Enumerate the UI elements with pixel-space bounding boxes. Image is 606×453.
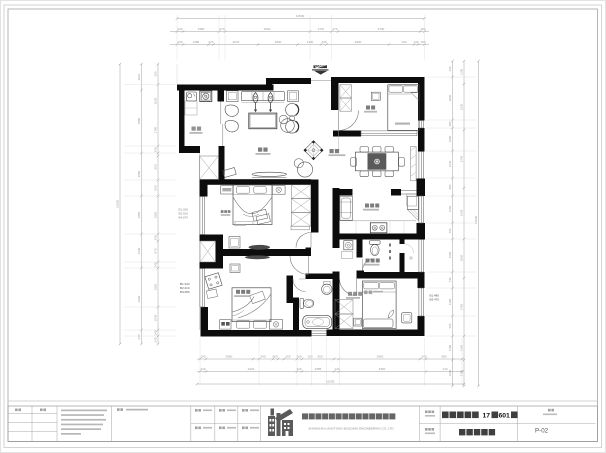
svg-text:2000: 2000 — [448, 94, 452, 101]
svg-text:940: 940 — [448, 323, 452, 328]
svg-text:2430: 2430 — [460, 209, 464, 216]
svg-text:1850: 1850 — [154, 283, 158, 290]
svg-text:140: 140 — [200, 354, 205, 358]
svg-text:3080: 3080 — [137, 170, 141, 177]
svg-text:1830: 1830 — [275, 40, 282, 44]
svg-text:180: 180 — [420, 40, 425, 44]
svg-text:800: 800 — [448, 184, 452, 189]
svg-text:1860: 1860 — [460, 254, 464, 261]
svg-text:240: 240 — [154, 235, 158, 240]
svg-text:1850: 1850 — [137, 211, 141, 218]
svg-text:2230: 2230 — [460, 103, 464, 110]
svg-text:2030: 2030 — [154, 97, 158, 104]
svg-text:240: 240 — [154, 337, 158, 342]
svg-text:1640: 1640 — [137, 247, 141, 254]
svg-text:2010: 2010 — [137, 73, 141, 80]
svg-text:1040: 1040 — [154, 314, 158, 321]
svg-text:3790: 3790 — [378, 27, 385, 31]
svg-text:1100: 1100 — [448, 345, 452, 352]
svg-text:B4:870: B4:870 — [179, 216, 189, 220]
svg-text:1850: 1850 — [154, 211, 158, 218]
svg-text:4000: 4000 — [264, 27, 271, 31]
svg-text:2900: 2900 — [137, 295, 141, 302]
svg-text:3360: 3360 — [379, 367, 386, 371]
svg-text:240: 240 — [296, 367, 301, 371]
svg-text:900: 900 — [154, 164, 158, 169]
svg-text:1180: 1180 — [193, 40, 200, 44]
svg-text:1100: 1100 — [460, 69, 464, 76]
svg-text:601: 601 — [499, 412, 511, 419]
svg-text:2790: 2790 — [460, 303, 464, 310]
svg-text:1080: 1080 — [448, 135, 452, 142]
svg-text:17: 17 — [483, 412, 491, 419]
svg-text:130: 130 — [413, 40, 418, 44]
svg-text:640: 640 — [137, 334, 141, 339]
svg-text:740: 740 — [448, 277, 452, 282]
svg-text:540: 540 — [154, 185, 158, 190]
svg-text:150: 150 — [307, 354, 312, 358]
svg-text:1780: 1780 — [154, 126, 158, 133]
svg-text:2740: 2740 — [460, 155, 464, 162]
svg-text:220: 220 — [208, 40, 213, 44]
svg-text:240: 240 — [154, 330, 158, 335]
svg-text:4320: 4320 — [248, 367, 255, 371]
svg-text:270: 270 — [219, 27, 224, 31]
svg-text:1240: 1240 — [448, 160, 452, 167]
svg-text:1300: 1300 — [448, 298, 452, 305]
svg-text:240: 240 — [260, 354, 265, 358]
svg-text:12050: 12050 — [116, 199, 120, 208]
svg-text:1160: 1160 — [460, 345, 464, 352]
svg-text:1170: 1170 — [318, 27, 325, 31]
svg-text:3680: 3680 — [226, 354, 233, 358]
svg-text:B3:470: B3:470 — [430, 298, 440, 302]
svg-text:P-02: P-02 — [535, 428, 549, 435]
svg-text:205: 205 — [285, 354, 290, 358]
svg-text:240: 240 — [177, 27, 182, 31]
svg-text:760: 760 — [448, 228, 452, 233]
svg-text:980: 980 — [441, 354, 446, 358]
svg-text:240: 240 — [321, 40, 326, 44]
svg-text:130: 130 — [401, 40, 406, 44]
svg-text:240: 240 — [154, 262, 158, 267]
svg-text:2900: 2900 — [355, 40, 362, 44]
svg-text:870: 870 — [154, 248, 158, 253]
svg-text:2960: 2960 — [377, 354, 384, 358]
svg-text:1200: 1200 — [448, 369, 452, 376]
svg-text:140: 140 — [334, 367, 339, 371]
svg-text:300: 300 — [154, 71, 158, 76]
svg-text:1500: 1500 — [448, 251, 452, 258]
svg-text:B4:480: B4:480 — [180, 290, 190, 294]
svg-text:240: 240 — [296, 354, 301, 358]
svg-text:380: 380 — [448, 121, 452, 126]
svg-text:240: 240 — [154, 147, 158, 152]
svg-text:180: 180 — [420, 27, 425, 31]
svg-text:270: 270 — [332, 27, 337, 31]
svg-text:4580: 4580 — [137, 117, 141, 124]
svg-text:240: 240 — [421, 354, 426, 358]
svg-text:1585: 1585 — [315, 367, 322, 371]
svg-text:240: 240 — [200, 367, 205, 371]
svg-text:11500: 11500 — [296, 14, 305, 18]
svg-text:240: 240 — [448, 66, 452, 71]
svg-text:2070: 2070 — [233, 40, 240, 44]
svg-text:1580: 1580 — [198, 27, 205, 31]
svg-text:900: 900 — [317, 354, 322, 358]
svg-text:SHANGHAI LANGTONG BUILDING ENG: SHANGHAI LANGTONG BUILDING ENGINEERING C… — [308, 427, 394, 431]
svg-text:900: 900 — [272, 354, 277, 358]
svg-text:140: 140 — [442, 367, 447, 371]
svg-text:1260: 1260 — [448, 205, 452, 212]
svg-text:10035: 10035 — [326, 379, 335, 383]
svg-text:240: 240 — [177, 40, 182, 44]
